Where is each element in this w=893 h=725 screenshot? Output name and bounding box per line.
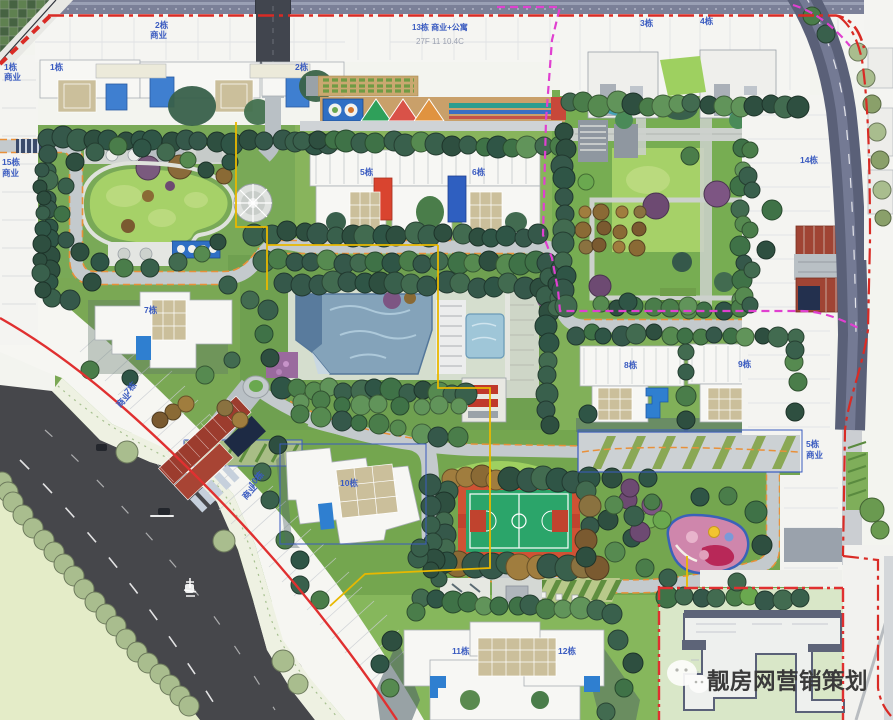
svg-text:商业: 商业 (806, 450, 824, 460)
svg-text:7栋: 7栋 (144, 305, 158, 315)
svg-text:10栋: 10栋 (340, 478, 358, 488)
svg-text:5栋: 5栋 (806, 439, 820, 449)
svg-text:8栋: 8栋 (624, 360, 638, 370)
svg-text:14栋: 14栋 (800, 155, 818, 165)
svg-text:11栋: 11栋 (452, 646, 470, 656)
svg-text:4栋: 4栋 (700, 16, 714, 26)
svg-text:12栋: 12栋 (558, 646, 576, 656)
svg-text:1栋: 1栋 (50, 62, 64, 72)
svg-text:商业: 商业 (2, 168, 20, 178)
svg-text:5栋: 5栋 (360, 167, 374, 177)
svg-text:3栋: 3栋 (640, 18, 654, 28)
svg-text:9栋: 9栋 (738, 359, 752, 369)
svg-text:靓房网营销策划: 靓房网营销策划 (707, 668, 868, 694)
svg-text:1栋: 1栋 (4, 62, 18, 72)
svg-text:15栋: 15栋 (2, 157, 20, 167)
svg-text:13栋 商业+公寓: 13栋 商业+公寓 (412, 22, 468, 32)
svg-text:2栋: 2栋 (295, 62, 309, 72)
svg-text:6栋: 6栋 (472, 167, 486, 177)
svg-text:27F 11 10.4C: 27F 11 10.4C (416, 37, 464, 46)
svg-text:商业: 商业 (150, 30, 168, 40)
svg-text:2栋: 2栋 (155, 20, 169, 30)
svg-text:商业: 商业 (4, 72, 22, 82)
